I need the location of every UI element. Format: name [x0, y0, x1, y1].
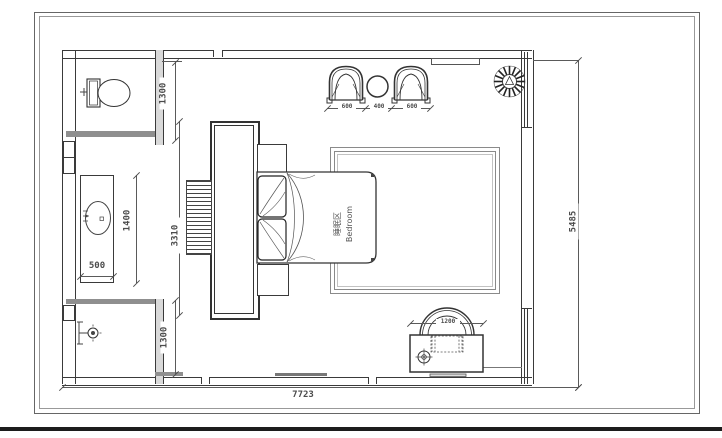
radiator-icon	[186, 180, 212, 255]
pillow	[258, 219, 286, 260]
dim-ext-toilet	[162, 61, 182, 62]
dim-label-cabinet: 3310	[172, 218, 181, 254]
armchair-icon	[391, 63, 431, 104]
dim-line-vanity-length	[136, 175, 137, 283]
window-right-top-line2	[527, 52, 528, 127]
wall-left-pipe-shaft-2	[63, 157, 75, 174]
tv-cabinet-inner	[214, 125, 254, 314]
dim-label-depth: 5485	[570, 204, 579, 240]
window-right-step-bottom	[521, 308, 532, 309]
dim-label-shower: 1300	[161, 322, 170, 354]
dim-label-side-table: 400	[370, 104, 388, 110]
shower-top-wall	[66, 299, 155, 304]
floor-plan-canvas: 睡眠区 Bedroom	[0, 0, 722, 438]
window-right-bottom	[524, 308, 525, 384]
armchair-icon	[326, 63, 366, 104]
dim-line-toilet	[175, 62, 176, 140]
dim-label-vanity-width: 500	[83, 262, 111, 271]
top-shelf	[431, 58, 480, 65]
toilet-icon	[76, 74, 132, 112]
plant-icon	[492, 64, 527, 99]
toilet-room-wall	[66, 131, 155, 137]
room-label-en: Bedroom	[344, 198, 356, 250]
side-table-icon	[364, 73, 391, 100]
window-right-bottom-line2	[527, 308, 528, 384]
dim-ext-depth	[533, 60, 578, 61]
nightstand-bottom	[257, 264, 289, 296]
bottom-ledge	[275, 373, 327, 376]
window-right-step-top	[521, 127, 532, 128]
dim-label-vanity-length: 1400	[124, 205, 133, 237]
desk-icon	[405, 300, 490, 380]
wall-bottom-mullion-2	[368, 377, 377, 384]
room-label: 睡眠区 Bedroom	[332, 198, 382, 250]
dim-line-width	[62, 387, 578, 388]
shower-head-icon	[74, 318, 108, 350]
dim-label-toilet: 1300	[160, 78, 169, 110]
dim-line-vanity-width	[80, 276, 113, 277]
pillow	[258, 176, 286, 217]
shower-partition-foot	[155, 372, 183, 376]
wall-bottom-mullion-1	[201, 377, 210, 384]
wall-top-mullion	[213, 50, 223, 57]
dim-line-shower	[175, 300, 176, 374]
room-label-zh: 睡眠区	[332, 198, 344, 250]
dim-label-width: 7723	[282, 391, 324, 400]
sheet-title-bar	[0, 427, 722, 431]
dim-label-desk: 1200	[436, 319, 460, 325]
dim-label-chair-left: 600	[338, 104, 356, 110]
dim-label-chair-right: 600	[403, 104, 421, 110]
